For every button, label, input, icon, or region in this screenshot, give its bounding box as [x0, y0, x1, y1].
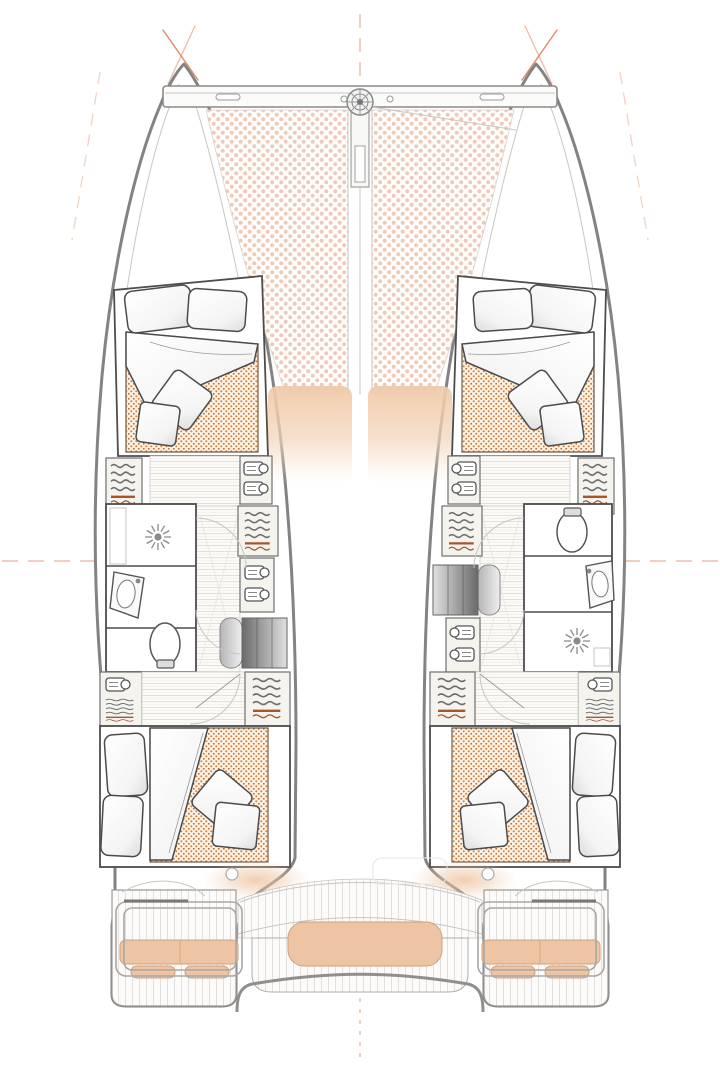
- port-companionway-steps: [220, 618, 287, 668]
- folded-clothes-icon: [245, 588, 269, 601]
- folded-clothes-icon: [452, 462, 476, 475]
- folded-clothes-icon: [588, 678, 612, 691]
- starboard-aft-cabin: [430, 726, 620, 867]
- starboard-aft-lockers: [430, 672, 620, 726]
- center-bench-cushion: [288, 922, 442, 966]
- floor-plan-canvas: [0, 0, 720, 1080]
- beam-fitting: [387, 96, 393, 102]
- beam-fitting: [341, 96, 347, 102]
- catamaran-plan-svg: [0, 0, 720, 1080]
- folded-clothes-icon: [106, 678, 130, 691]
- folded-clothes-icon: [244, 482, 268, 495]
- windlass-icon: [347, 89, 373, 115]
- engine-hatch-starboard: [482, 868, 494, 880]
- port-forward-cabin: [114, 276, 268, 456]
- folded-clothes-icon: [245, 566, 269, 579]
- folded-clothes-icon: [244, 462, 268, 475]
- port-locker-column: [238, 456, 278, 612]
- starboard-interior: [430, 276, 620, 867]
- folded-clothes-icon: [452, 482, 476, 495]
- port-corridor-floor: [150, 456, 240, 506]
- bowsprit: [351, 107, 369, 394]
- beam-handle-starboard: [480, 94, 504, 100]
- bow-dash-starboard: [620, 72, 648, 240]
- starboard-forward-cabin: [452, 276, 606, 456]
- port-interior: [100, 276, 290, 867]
- folded-clothes-icon: [450, 648, 474, 661]
- folded-clothes-icon: [450, 626, 474, 639]
- bow-dash-port: [72, 72, 100, 240]
- port-aft-corridor: [142, 672, 245, 726]
- beam-handle-port: [216, 94, 240, 100]
- foredeck-pad-port: [268, 386, 352, 484]
- starboard-corridor-floor: [480, 456, 570, 506]
- washbasin-icon: [586, 561, 614, 608]
- port-aft-lockers: [100, 672, 290, 726]
- port-aft-cabin: [100, 726, 290, 867]
- foredeck-pad-starboard: [368, 386, 452, 484]
- starboard-aft-corridor: [475, 672, 578, 726]
- engine-hatch-port: [226, 868, 238, 880]
- starboard-companionway-steps: [433, 565, 500, 615]
